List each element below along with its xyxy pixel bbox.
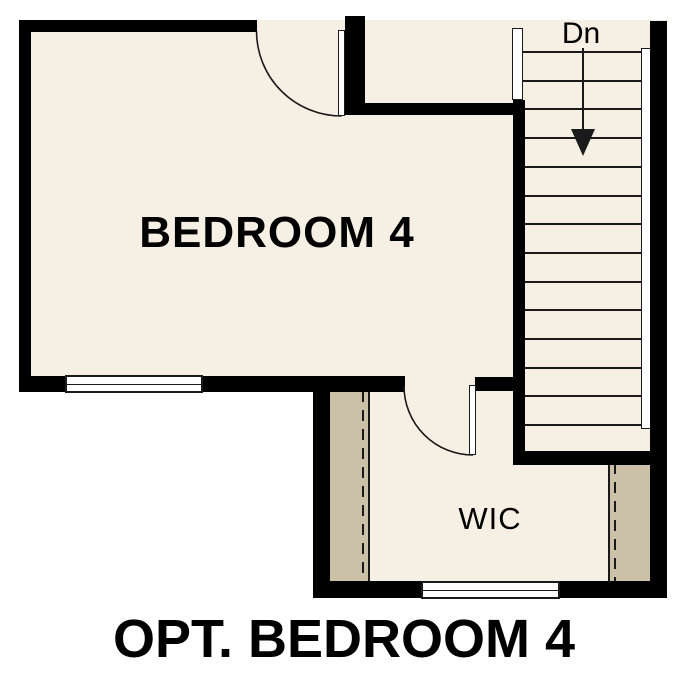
wall-hall-divider-stub	[345, 16, 365, 115]
wall-top	[19, 20, 257, 32]
stair-tread	[523, 367, 641, 369]
down-arrow-shaft	[582, 48, 584, 130]
stair-top-opening-marker	[512, 28, 523, 100]
room-label-wic: WIC	[458, 501, 521, 537]
stair-tread	[523, 309, 641, 311]
wic-window	[421, 581, 560, 599]
stair-tread	[523, 223, 641, 225]
stair-tread	[523, 195, 641, 197]
plan-caption: OPT. BEDROOM 4	[113, 608, 575, 670]
down-arrow-icon	[571, 129, 595, 156]
closet-shelf-left	[330, 391, 370, 581]
wall-left	[19, 20, 31, 392]
stairs-down-label: Dn	[562, 17, 600, 51]
room-label-bedroom-4: BEDROOM 4	[139, 208, 414, 258]
stair-tread	[523, 281, 641, 283]
window-pane-divider	[67, 384, 201, 385]
stair-tread	[523, 338, 641, 340]
closet-rod-left-dashed-line	[362, 391, 364, 581]
closet-rod-right-dashed-line	[614, 463, 616, 581]
stair-tread	[523, 395, 641, 397]
window-pane-divider	[423, 590, 558, 591]
wic-door-leaf	[469, 385, 476, 455]
floor-plan: BEDROOM 4 WIC Dn OPT. BEDROOM 4	[0, 0, 687, 687]
wall-hall-bottom	[345, 103, 525, 115]
bedroom-door-leaf	[338, 30, 345, 116]
stair-tread	[523, 252, 641, 254]
wall-wic-left	[313, 376, 330, 598]
stair-tread	[523, 166, 641, 168]
wall-right	[650, 21, 667, 598]
wall-stairwell-bottom	[513, 451, 667, 465]
wall-stairwell-left	[513, 100, 525, 465]
bedroom-window	[65, 375, 203, 393]
stair-tread	[523, 424, 641, 426]
